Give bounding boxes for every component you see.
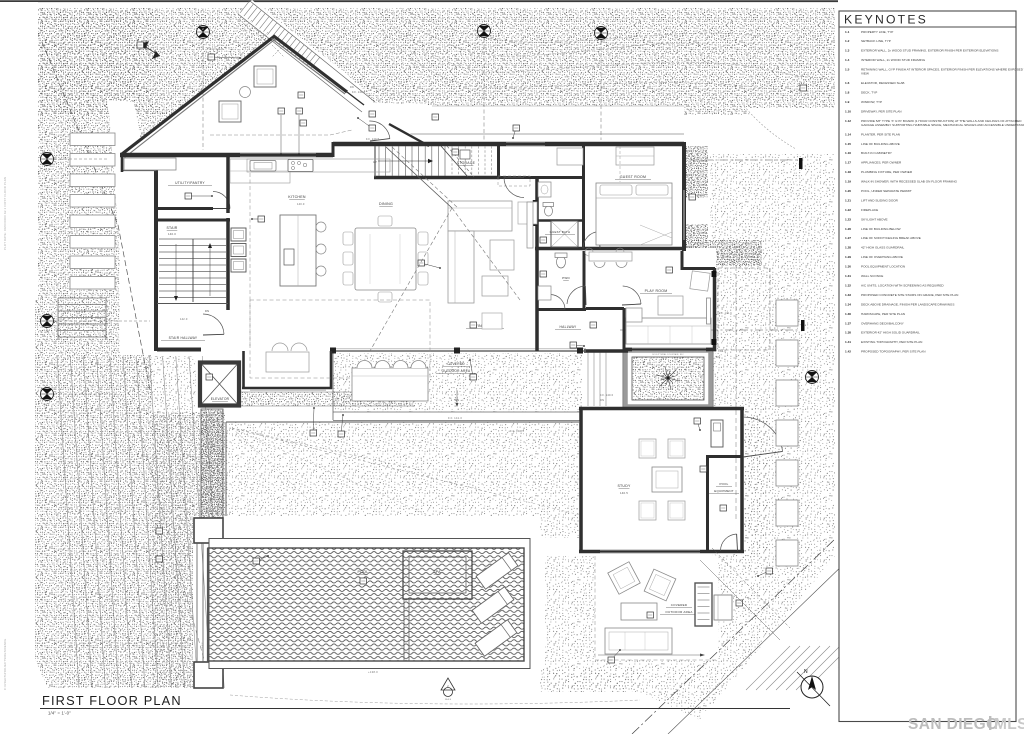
svg-text:133': 133': [147, 642, 152, 648]
svg-text:F.F. 140.5: F.F. 140.5: [510, 429, 524, 433]
svg-text:INTERIOR WALL, 2x WOOD STUD FR: INTERIOR WALL, 2x WOOD STUD FRAMING: [861, 58, 926, 62]
svg-text:A/C UNITS, LOCATION WITH SCREE: A/C UNITS, LOCATION WITH SCREENING AS RE…: [861, 284, 944, 288]
svg-text:F.F. 141.9: F.F. 141.9: [719, 312, 732, 315]
svg-text:1.27: 1.27: [845, 236, 851, 240]
svg-text:COVERED: COVERED: [447, 362, 465, 366]
svg-text:VIEW: VIEW: [861, 72, 869, 76]
svg-text:1.26: 1.26: [845, 227, 851, 231]
svg-text:EXISTING TOPOGRAPHY, PER SITE: EXISTING TOPOGRAPHY, PER SITE PLAN: [861, 340, 922, 344]
svg-text:48.0': 48.0': [44, 168, 51, 172]
svg-text:EXTERIOR 42" HIGH SOLID GUARDR: EXTERIOR 42" HIGH SOLID GUARDRAIL: [861, 331, 920, 335]
svg-text:KITCHEN: KITCHEN: [288, 195, 306, 199]
svg-text:140: 140: [411, 51, 417, 55]
svg-text:1.20: 1.20: [845, 189, 851, 193]
svg-text:1.1: 1.1: [845, 30, 850, 34]
svg-text:F.F. 141.0: F.F. 141.0: [210, 47, 224, 51]
svg-text:142.0: 142.0: [180, 317, 188, 321]
svg-text:1.10: 1.10: [845, 109, 851, 113]
svg-text:1.42: 1.42: [845, 350, 851, 354]
svg-text:131': 131': [121, 642, 126, 648]
svg-text:UP: UP: [373, 160, 377, 164]
svg-text:EQUIPMENT: EQUIPMENT: [714, 489, 733, 493]
svg-text:48.1': 48.1': [44, 403, 51, 407]
svg-text:GARAGE ASSEMBLY SUPPORTING HAB: GARAGE ASSEMBLY SUPPORTING HABITABLE SPA…: [861, 123, 1024, 127]
svg-text:PWD: PWD: [562, 276, 570, 280]
svg-text:DECK ABOVE DRAINAGE, FINISH PE: DECK ABOVE DRAINAGE, FINISH PER LANDSCAP…: [861, 302, 954, 306]
svg-text:SPA: SPA: [433, 570, 441, 574]
svg-text:1.2: 1.2: [845, 39, 850, 43]
svg-text:FIREPLACE: FIREPLACE: [861, 208, 878, 212]
svg-text:GUEST BATH: GUEST BATH: [550, 230, 571, 234]
svg-text:COVERED: COVERED: [671, 603, 688, 607]
svg-text:1.3: 1.3: [845, 49, 850, 53]
svg-text:140.0: 140.0: [297, 202, 305, 206]
svg-text:129': 129': [94, 642, 99, 648]
svg-text:1/4" = 1'-0": 1/4" = 1'-0": [48, 711, 71, 716]
svg-text:F.F. 141.0: F.F. 141.0: [448, 416, 462, 420]
svg-text:134': 134': [160, 642, 165, 648]
svg-text:WALK-IN SHOWER, WITH RECESSED: WALK-IN SHOWER, WITH RECESSED SLAB ON FL…: [861, 180, 958, 184]
svg-text:+138.0: +138.0: [368, 670, 378, 674]
svg-text:HARDSCAPE, PER SITE PLAN: HARDSCAPE, PER SITE PLAN: [861, 312, 905, 316]
svg-text:F.F. 140.5: F.F. 140.5: [352, 90, 366, 94]
svg-text:DN: DN: [716, 355, 720, 359]
svg-text:1.38: 1.38: [845, 331, 851, 335]
svg-text:SETBACK LINE, TYP: SETBACK LINE, TYP: [861, 39, 891, 43]
svg-text:1.29: 1.29: [845, 255, 851, 259]
svg-text:127': 127': [68, 642, 73, 648]
svg-text:128': 128': [81, 642, 86, 648]
svg-text:1.12: 1.12: [845, 119, 851, 123]
svg-text:WALL SCONCE: WALL SCONCE: [861, 274, 883, 278]
svg-text:1.4: 1.4: [845, 58, 850, 62]
svg-text:PROPOSED TOPOGRAPHY, PER SITE: PROPOSED TOPOGRAPHY, PER SITE PLAN: [861, 350, 925, 354]
svg-text:LINE OF OVERHANG ABOVE: LINE OF OVERHANG ABOVE: [861, 255, 903, 259]
svg-text:WINDOW, TYP: WINDOW, TYP: [861, 100, 882, 104]
svg-text:140.5: 140.5: [620, 491, 628, 495]
svg-text:DINING: DINING: [379, 202, 393, 206]
svg-text:POOL: POOL: [358, 570, 369, 574]
svg-text:KEYNOTES: KEYNOTES: [844, 13, 928, 27]
svg-text:DRIVEWAY, PER SITE PLAN: DRIVEWAY, PER SITE PLAN: [861, 109, 902, 113]
svg-text:1.18: 1.18: [845, 170, 851, 174]
svg-text:1.15: 1.15: [845, 142, 851, 146]
svg-text:DN: DN: [350, 86, 354, 89]
svg-text:145: 145: [414, 65, 420, 69]
svg-text:1.36: 1.36: [845, 312, 851, 316]
svg-text:1.30: 1.30: [845, 265, 851, 269]
svg-text:LIFT AND SLIDING DOOR: LIFT AND SLIDING DOOR: [861, 198, 899, 202]
svg-text:1.23: 1.23: [845, 217, 851, 221]
svg-text:ELEVATOR, RECESSED SLAB: ELEVATOR, RECESSED SLAB: [861, 81, 905, 85]
svg-text:PLANTER, PER SITE PLAN: PLANTER, PER SITE PLAN: [861, 132, 900, 136]
svg-text:PROPOSED CONCRETE SITE STAIRS: PROPOSED CONCRETE SITE STAIRS ON GRADE, …: [861, 293, 958, 297]
svg-text:POOL EQUIPMENT LOCATION: POOL EQUIPMENT LOCATION: [861, 265, 905, 269]
svg-text:42" HIGH GLASS GUARDRAIL: 42" HIGH GLASS GUARDRAIL: [861, 246, 904, 250]
svg-text:132': 132': [134, 642, 139, 648]
svg-text:SAN DIEGO: SAN DIEGO: [908, 716, 999, 733]
svg-text:FIRST FLOOR PLAN: FIRST FLOOR PLAN: [42, 693, 182, 708]
svg-text:141: 141: [408, 33, 414, 37]
svg-text:140.0: 140.0: [168, 232, 176, 236]
svg-text:1.41: 1.41: [845, 340, 851, 344]
svg-text:OUTDOOR AREA: OUTDOOR AREA: [442, 369, 471, 373]
svg-text:MLS: MLS: [994, 716, 1024, 733]
svg-text:ELEVATOR: ELEVATOR: [211, 397, 230, 401]
svg-text:LINE OF BUILDING BELOW: LINE OF BUILDING BELOW: [861, 227, 901, 231]
svg-text:1.19: 1.19: [845, 180, 851, 184]
svg-text:N: N: [804, 669, 808, 675]
svg-text:136': 136': [187, 642, 192, 648]
svg-text:RETAINING WALL, GYP FINISH AT: RETAINING WALL, GYP FINISH AT INTERIOR S…: [861, 68, 1024, 72]
svg-text:1.32: 1.32: [845, 284, 851, 288]
svg-text:1.37: 1.37: [845, 321, 851, 325]
svg-text:PLOT DATE: 00/00/0000 A2.1 FI: PLOT DATE: 00/00/0000 A2.1 FIRST FLOOR P…: [3, 177, 7, 250]
svg-text:1.9: 1.9: [845, 100, 850, 104]
svg-text:UTILITY/PANTRY: UTILITY/PANTRY: [175, 181, 205, 185]
svg-text:POOL, UNDER SEPARATE PERMIT: POOL, UNDER SEPARATE PERMIT: [861, 189, 912, 193]
svg-text:135': 135': [174, 642, 179, 648]
svg-text:BUILT-IN CABINETRY: BUILT-IN CABINETRY: [861, 151, 892, 155]
svg-text:1.28: 1.28: [845, 246, 851, 250]
svg-text:1.8: 1.8: [845, 91, 850, 95]
svg-text:C:\USERS\PROJECTS\RESIDENCE: C:\USERS\PROJECTS\RESIDENCE: [3, 639, 7, 690]
svg-text:1.16: 1.16: [845, 151, 851, 155]
svg-text:164.5: 164.5: [445, 699, 452, 701]
svg-text:PROPERTY LINE, TYP: PROPERTY LINE, TYP: [861, 30, 893, 34]
svg-text:OUTDOOR AREA: OUTDOOR AREA: [665, 610, 692, 614]
svg-text:SKYLIGHT ABOVE: SKYLIGHT ABOVE: [861, 217, 888, 221]
svg-text:STORAGE: STORAGE: [457, 161, 476, 165]
svg-text:STAIR HALLWAY: STAIR HALLWAY: [169, 336, 198, 340]
svg-text:DECK, TYP: DECK, TYP: [861, 91, 877, 95]
svg-text:EXTERIOR WALL, 2x WOOD STUD FR: EXTERIOR WALL, 2x WOOD STUD FRAMING, EXT…: [861, 49, 998, 53]
svg-text:1.22: 1.22: [845, 208, 851, 212]
svg-text:OVERHANG DECK/BALCONY: OVERHANG DECK/BALCONY: [861, 321, 904, 325]
svg-text:1.21: 1.21: [845, 198, 851, 202]
svg-text:1.17: 1.17: [845, 161, 851, 165]
svg-text:1.14: 1.14: [845, 132, 851, 136]
svg-text:130': 130': [108, 642, 113, 648]
svg-text:1.33: 1.33: [845, 293, 851, 297]
svg-text:HALLWAY: HALLWAY: [560, 325, 577, 329]
svg-text:139': 139': [44, 330, 50, 334]
svg-text:1.6: 1.6: [845, 81, 850, 85]
svg-text:1.34: 1.34: [845, 302, 851, 306]
svg-text:LINE OF SOFFIT/CEILING BREAK A: LINE OF SOFFIT/CEILING BREAK ABOVE: [861, 236, 921, 240]
svg-text:SCULPTURAL FOUNTAIN, NIC: SCULPTURAL FOUNTAIN, NIC: [652, 353, 684, 356]
svg-text:F.F. 140.0: F.F. 140.0: [600, 393, 614, 397]
svg-text:1.5: 1.5: [845, 68, 850, 72]
svg-text:1.31: 1.31: [845, 274, 851, 278]
svg-text:DN: DN: [205, 309, 209, 313]
svg-text:APPLIANCES, PER OWNER: APPLIANCES, PER OWNER: [861, 161, 902, 165]
svg-text:STUDY: STUDY: [617, 484, 631, 488]
svg-text:STAIR: STAIR: [167, 226, 178, 230]
svg-text:POOL: POOL: [719, 482, 728, 486]
svg-text:PLAY ROOM: PLAY ROOM: [645, 289, 668, 293]
svg-text:PLUMBING FIXTURE, PER OWNER: PLUMBING FIXTURE, PER OWNER: [861, 170, 913, 174]
svg-text:LINE OF BUILDING ABOVE: LINE OF BUILDING ABOVE: [861, 142, 900, 146]
svg-text:GUEST ROOM: GUEST ROOM: [620, 175, 646, 179]
svg-text:F.F. 140.5: F.F. 140.5: [366, 137, 380, 141]
svg-text:DN: DN: [600, 398, 604, 402]
